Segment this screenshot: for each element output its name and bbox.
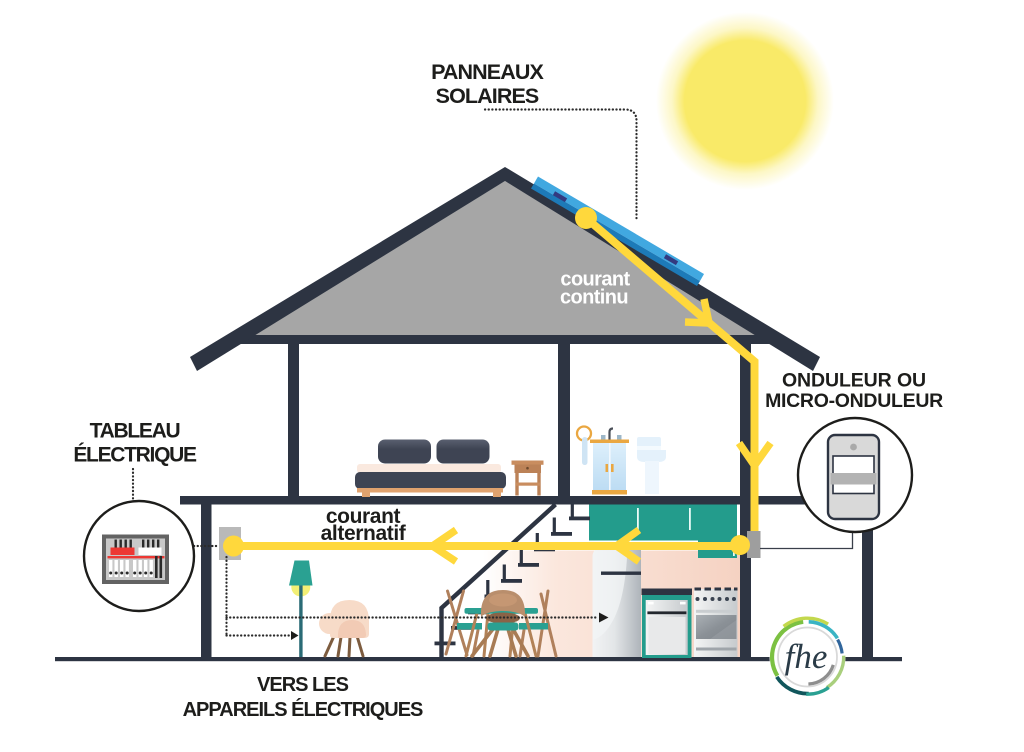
svg-text:MICRO-ONDULEUR: MICRO-ONDULEUR	[765, 390, 943, 412]
svg-text:PANNEAUX: PANNEAUX	[431, 60, 544, 84]
svg-text:SOLAIRES: SOLAIRES	[436, 84, 539, 108]
svg-text:APPAREILS ÉLECTRIQUES: APPAREILS ÉLECTRIQUES	[183, 698, 423, 721]
svg-text:VERS LES: VERS LES	[257, 674, 349, 696]
svg-text:continu: continu	[560, 287, 628, 309]
svg-text:alternatif: alternatif	[321, 522, 407, 545]
svg-text:ONDULEUR OU: ONDULEUR OU	[782, 370, 926, 392]
svg-text:TABLEAU: TABLEAU	[90, 420, 180, 443]
svg-text:fhe: fhe	[785, 637, 828, 676]
svg-text:ÉLECTRIQUE: ÉLECTRIQUE	[73, 444, 197, 467]
